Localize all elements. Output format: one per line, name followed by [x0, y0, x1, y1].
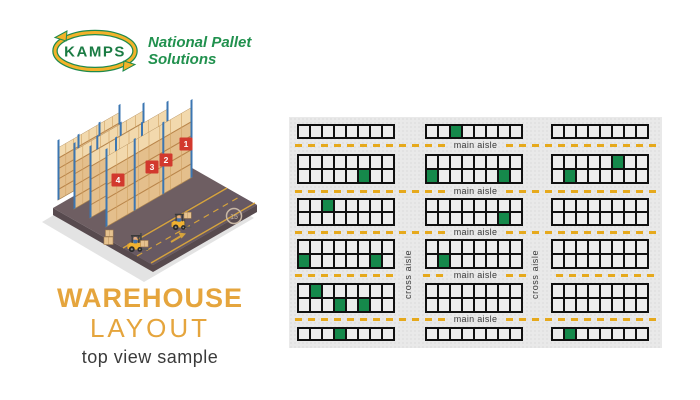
rack-cell	[451, 156, 461, 168]
rack-cell-occupied	[299, 255, 309, 267]
aisle-dash	[506, 318, 656, 321]
rack-cell	[601, 299, 611, 311]
rack-cell	[451, 285, 461, 297]
rack-cell	[427, 285, 437, 297]
rack-cell	[637, 285, 647, 297]
main-aisle: main aisle	[295, 269, 656, 281]
rack-cell	[451, 241, 461, 253]
rack-cell	[565, 299, 575, 311]
rack-number-sign: 4	[112, 174, 125, 187]
main-aisle-label: main aisle	[445, 186, 507, 196]
rack-cell	[511, 241, 521, 253]
rack-cell	[347, 241, 357, 253]
rack-cell	[383, 156, 393, 168]
rack-cell-occupied	[427, 170, 437, 182]
rack-cell	[383, 170, 393, 182]
rack-cell	[383, 255, 393, 267]
rack-cell	[323, 156, 333, 168]
rack-cell	[511, 126, 521, 137]
rack-cell	[475, 126, 485, 137]
rack-cell-occupied	[499, 170, 509, 182]
rack-cell	[577, 329, 587, 339]
rack-cell	[637, 213, 647, 224]
rack-cell	[637, 156, 647, 168]
logo-arrow-left-icon	[55, 31, 67, 41]
rack-cell	[601, 126, 611, 137]
aisle-dash	[295, 190, 445, 193]
rack-cell	[439, 241, 449, 253]
svg-text:1: 1	[184, 139, 189, 149]
rack-cell	[565, 213, 575, 224]
rack-bank	[297, 239, 395, 269]
rack-cell	[511, 255, 521, 267]
rack-cell	[323, 241, 333, 253]
rack-cell	[637, 299, 647, 311]
tagline-line-2: Solutions	[148, 52, 251, 69]
rack-cell	[347, 126, 357, 137]
rack-cell	[299, 213, 309, 224]
rack-cell	[439, 170, 449, 182]
rack-cell	[553, 213, 563, 224]
warehouse-illustration: 15 1 2	[38, 96, 266, 296]
rack-bank	[297, 283, 395, 313]
rack-cell	[323, 329, 333, 339]
rack-cell	[347, 285, 357, 297]
rack-cell	[553, 329, 563, 339]
rack-number-sign: 1	[180, 138, 193, 151]
rack-cell	[359, 156, 369, 168]
rack-cell	[451, 299, 461, 311]
rack-cell	[625, 200, 635, 211]
rack-cell	[371, 156, 381, 168]
rack-cell	[625, 241, 635, 253]
rack-cell	[511, 299, 521, 311]
pallet-stack	[104, 237, 113, 245]
rack-cell	[637, 241, 647, 253]
title-line-2: LAYOUT	[0, 314, 300, 344]
title-block: WAREHOUSE LAYOUT top view sample	[0, 284, 300, 368]
rack-cell	[475, 241, 485, 253]
rack-cell	[359, 255, 369, 267]
rack-cell	[625, 285, 635, 297]
rack-cell	[565, 200, 575, 211]
rack-cell	[463, 299, 473, 311]
rack-cell-occupied	[323, 200, 333, 211]
rack-cell	[347, 156, 357, 168]
rack-bank	[425, 198, 523, 226]
rack-cell	[553, 170, 563, 182]
rack-number-sign: 2	[160, 154, 173, 167]
rack-cell	[347, 200, 357, 211]
main-aisle: main aisle	[295, 185, 656, 197]
rack-cell	[589, 329, 599, 339]
rack-cell	[625, 170, 635, 182]
rack-cell	[625, 255, 635, 267]
rack-cell	[359, 241, 369, 253]
rack-cell	[427, 255, 437, 267]
rack-cell	[637, 329, 647, 339]
rack-cell	[487, 299, 497, 311]
main-aisle-label: main aisle	[445, 227, 507, 237]
rack-cell	[577, 299, 587, 311]
rack-cell	[347, 170, 357, 182]
rack-cell	[589, 213, 599, 224]
rack-bank	[425, 124, 523, 139]
rack-cell	[359, 200, 369, 211]
rack-cell	[601, 329, 611, 339]
rack-cell	[347, 329, 357, 339]
rack-cell	[589, 170, 599, 182]
rack-cell	[499, 285, 509, 297]
rack-cell	[475, 299, 485, 311]
rack-cell	[553, 156, 563, 168]
rack-cell-occupied	[565, 170, 575, 182]
rack-cell	[383, 241, 393, 253]
rack-cell	[371, 126, 381, 137]
rack-cell	[613, 285, 623, 297]
aisle-dash	[506, 144, 656, 147]
rack-cell	[359, 285, 369, 297]
rack-cell	[383, 299, 393, 311]
rack-cell	[601, 213, 611, 224]
rack-cell	[499, 255, 509, 267]
rack-bank	[551, 198, 649, 226]
logo-tagline: National Pallet Solutions	[148, 35, 251, 69]
rack-cell	[451, 170, 461, 182]
rack-cell	[601, 241, 611, 253]
rack-bank	[425, 239, 523, 269]
rack-cell	[323, 285, 333, 297]
rack-cell	[427, 213, 437, 224]
svg-text:15: 15	[230, 214, 238, 221]
rack-cell	[439, 156, 449, 168]
rack-cell	[577, 126, 587, 137]
rack-bank	[297, 124, 395, 139]
title-line-1: WAREHOUSE	[0, 284, 300, 314]
rack-cell	[311, 299, 321, 311]
rack-cell	[511, 213, 521, 224]
rack-cell	[553, 126, 563, 137]
rack-cell	[383, 329, 393, 339]
rack-cell	[323, 170, 333, 182]
rack-cell	[359, 126, 369, 137]
aisle-dash	[295, 274, 395, 277]
rack-cell	[637, 170, 647, 182]
rack-cell	[347, 213, 357, 224]
rack-cell	[565, 285, 575, 297]
rack-cell	[383, 213, 393, 224]
rack-cell	[475, 156, 485, 168]
layout-panel: main aislemain aislemain aislemain aisle…	[289, 117, 662, 348]
rack-cell	[475, 170, 485, 182]
rack-cell	[335, 170, 345, 182]
rack-cell	[613, 329, 623, 339]
rack-cell	[487, 200, 497, 211]
rack-cell	[613, 255, 623, 267]
rack-cell	[511, 200, 521, 211]
aisle-dash	[295, 231, 445, 234]
rack-cell	[601, 285, 611, 297]
logo-block: KAMPS National Pallet Solutions	[50, 28, 140, 75]
rack-cell	[613, 126, 623, 137]
rack-cell	[511, 170, 521, 182]
rack-cell-occupied	[311, 285, 321, 297]
rack-cell	[589, 285, 599, 297]
rack-cell	[427, 329, 437, 339]
main-aisle: main aisle	[295, 313, 656, 325]
rack-cell	[371, 241, 381, 253]
aisle-dash	[506, 231, 656, 234]
aisle-dash	[423, 274, 445, 277]
rack-cell	[499, 156, 509, 168]
rack-cell	[589, 241, 599, 253]
rack-cell	[625, 299, 635, 311]
rack-bank	[297, 198, 395, 226]
rack-cell	[299, 285, 309, 297]
rack-cell	[299, 126, 309, 137]
rack-cell	[487, 285, 497, 297]
rack-cell	[371, 170, 381, 182]
aisle-dash	[506, 190, 656, 193]
rack-cell	[487, 255, 497, 267]
rack-cell	[511, 329, 521, 339]
rack-bank	[297, 154, 395, 184]
rack-cell	[601, 255, 611, 267]
logo-arrow-right-icon	[123, 61, 135, 71]
rack-bank	[297, 327, 395, 341]
rack-bank	[551, 239, 649, 269]
rack-cell	[371, 200, 381, 211]
rack-cell	[637, 255, 647, 267]
rack-cell	[499, 329, 509, 339]
rack-cell	[589, 255, 599, 267]
rack-cell	[475, 200, 485, 211]
rack-bank	[551, 327, 649, 341]
rack-cell	[451, 213, 461, 224]
rack-cell	[451, 200, 461, 211]
rack-cell	[383, 200, 393, 211]
rack-cell	[511, 156, 521, 168]
rack-cell	[371, 285, 381, 297]
rack-cell-occupied	[359, 299, 369, 311]
rack-cell	[613, 241, 623, 253]
pallet-stack	[106, 230, 114, 236]
rack-cell	[311, 213, 321, 224]
rack-cell	[311, 255, 321, 267]
rack-cell	[475, 285, 485, 297]
rack-bank	[551, 283, 649, 313]
rack-number-sign: 3	[146, 161, 159, 174]
rack-cell	[625, 156, 635, 168]
rack-cell	[311, 200, 321, 211]
rack-cell	[553, 200, 563, 211]
rack-cell	[487, 156, 497, 168]
rack-cell-occupied	[499, 213, 509, 224]
rack-cell	[553, 255, 563, 267]
rack-cell	[637, 200, 647, 211]
main-aisle-label: main aisle	[445, 270, 507, 280]
rack-cell	[589, 126, 599, 137]
rack-cell	[499, 126, 509, 137]
rack-cell	[463, 126, 473, 137]
rack-cell	[577, 213, 587, 224]
rack-cell	[427, 156, 437, 168]
rack-cell	[335, 126, 345, 137]
rack-cell-occupied	[439, 255, 449, 267]
rack-cell	[565, 255, 575, 267]
rack-cell	[577, 156, 587, 168]
rack-cell	[299, 299, 309, 311]
rack-cell	[475, 255, 485, 267]
rack-cell	[299, 329, 309, 339]
rack-cell-occupied	[565, 329, 575, 339]
rack-cell	[311, 329, 321, 339]
rack-cell	[427, 299, 437, 311]
rack-cell	[625, 213, 635, 224]
rack-cell	[487, 241, 497, 253]
rack-cell	[577, 170, 587, 182]
rack-cell	[565, 241, 575, 253]
rack-cell	[311, 126, 321, 137]
rack-cell	[601, 156, 611, 168]
rack-cell	[359, 329, 369, 339]
rack-cell	[589, 156, 599, 168]
rack-cell	[463, 255, 473, 267]
rack-cell	[311, 241, 321, 253]
rack-cell	[589, 200, 599, 211]
rack-bank	[551, 124, 649, 139]
rack-cell	[427, 241, 437, 253]
kamps-logo: KAMPS	[50, 28, 140, 75]
rack-cell	[487, 213, 497, 224]
aisle-dash	[295, 318, 445, 321]
rack-cell	[323, 299, 333, 311]
rack-cell	[577, 285, 587, 297]
rack-bank	[425, 327, 523, 341]
rack-cell	[463, 285, 473, 297]
rack-cell	[371, 299, 381, 311]
rack-cell	[335, 213, 345, 224]
rack-cell	[359, 213, 369, 224]
rack-cell	[475, 213, 485, 224]
rack-cell	[323, 213, 333, 224]
cross-aisle-label: cross aisle	[530, 241, 540, 307]
rack-cell	[463, 200, 473, 211]
rack-cell	[601, 200, 611, 211]
rack-cell	[383, 126, 393, 137]
rack-cell	[311, 156, 321, 168]
rack-cell	[553, 241, 563, 253]
rack-cell	[439, 285, 449, 297]
rack-cell	[347, 299, 357, 311]
main-aisle: main aisle	[295, 226, 656, 238]
main-aisle-label: main aisle	[445, 314, 507, 324]
svg-text:4: 4	[116, 175, 121, 185]
logo-brand-text: KAMPS	[64, 44, 126, 61]
rack-cell	[439, 126, 449, 137]
rack-cell	[427, 200, 437, 211]
rack-cell	[601, 170, 611, 182]
rack-cell	[451, 255, 461, 267]
rack-cell	[335, 200, 345, 211]
rack-cell	[613, 299, 623, 311]
aisle-dash	[556, 274, 656, 277]
rack-cell	[577, 255, 587, 267]
rack-cell	[463, 213, 473, 224]
rack-cell	[511, 285, 521, 297]
rack-cell	[625, 126, 635, 137]
rack-cell	[613, 213, 623, 224]
rack-cell	[439, 329, 449, 339]
rack-bank	[425, 154, 523, 184]
rack-cell	[463, 170, 473, 182]
rack-cell-occupied	[371, 255, 381, 267]
rack-cell	[577, 241, 587, 253]
rack-cell	[383, 285, 393, 297]
rack-cell	[311, 170, 321, 182]
rack-cell-occupied	[613, 156, 623, 168]
rack-cell	[463, 241, 473, 253]
rack-cell	[335, 255, 345, 267]
rack-cell	[499, 241, 509, 253]
rack-cell	[637, 126, 647, 137]
rack-cell	[487, 329, 497, 339]
rack-cell	[625, 329, 635, 339]
rack-cell	[553, 299, 563, 311]
rack-cell-occupied	[451, 126, 461, 137]
rack-cell	[463, 329, 473, 339]
rack-cell	[613, 170, 623, 182]
rack-cell	[439, 200, 449, 211]
rack-cell	[347, 255, 357, 267]
rack-cell	[451, 329, 461, 339]
rack-cell	[565, 126, 575, 137]
rack-cell	[439, 299, 449, 311]
rack-cell	[553, 285, 563, 297]
rack-cell	[439, 213, 449, 224]
rack-cell	[299, 170, 309, 182]
rack-cell	[499, 200, 509, 211]
rack-cell	[487, 170, 497, 182]
rack-cell	[371, 213, 381, 224]
rack-cell	[335, 285, 345, 297]
rack-cell	[589, 299, 599, 311]
rack-bank	[551, 154, 649, 184]
rack-cell	[371, 329, 381, 339]
rack-cell	[613, 200, 623, 211]
svg-text:2: 2	[164, 155, 169, 165]
title-subtitle: top view sample	[0, 347, 300, 368]
aisle-dash	[506, 274, 528, 277]
rack-cell	[323, 126, 333, 137]
rack-cell	[335, 241, 345, 253]
rack-cell	[299, 241, 309, 253]
main-aisle-label: main aisle	[445, 140, 507, 150]
rack-cell	[565, 156, 575, 168]
rack-cell	[335, 156, 345, 168]
rack-cell	[577, 200, 587, 211]
rack-cell	[427, 126, 437, 137]
svg-text:3: 3	[150, 162, 155, 172]
cross-aisle-label: cross aisle	[403, 241, 413, 307]
rack-cell-occupied	[359, 170, 369, 182]
aisle-dash	[295, 144, 445, 147]
rack-cell	[299, 200, 309, 211]
rack-bank	[425, 283, 523, 313]
rack-cell	[499, 299, 509, 311]
rack-cell-occupied	[335, 299, 345, 311]
rack-cell	[299, 156, 309, 168]
